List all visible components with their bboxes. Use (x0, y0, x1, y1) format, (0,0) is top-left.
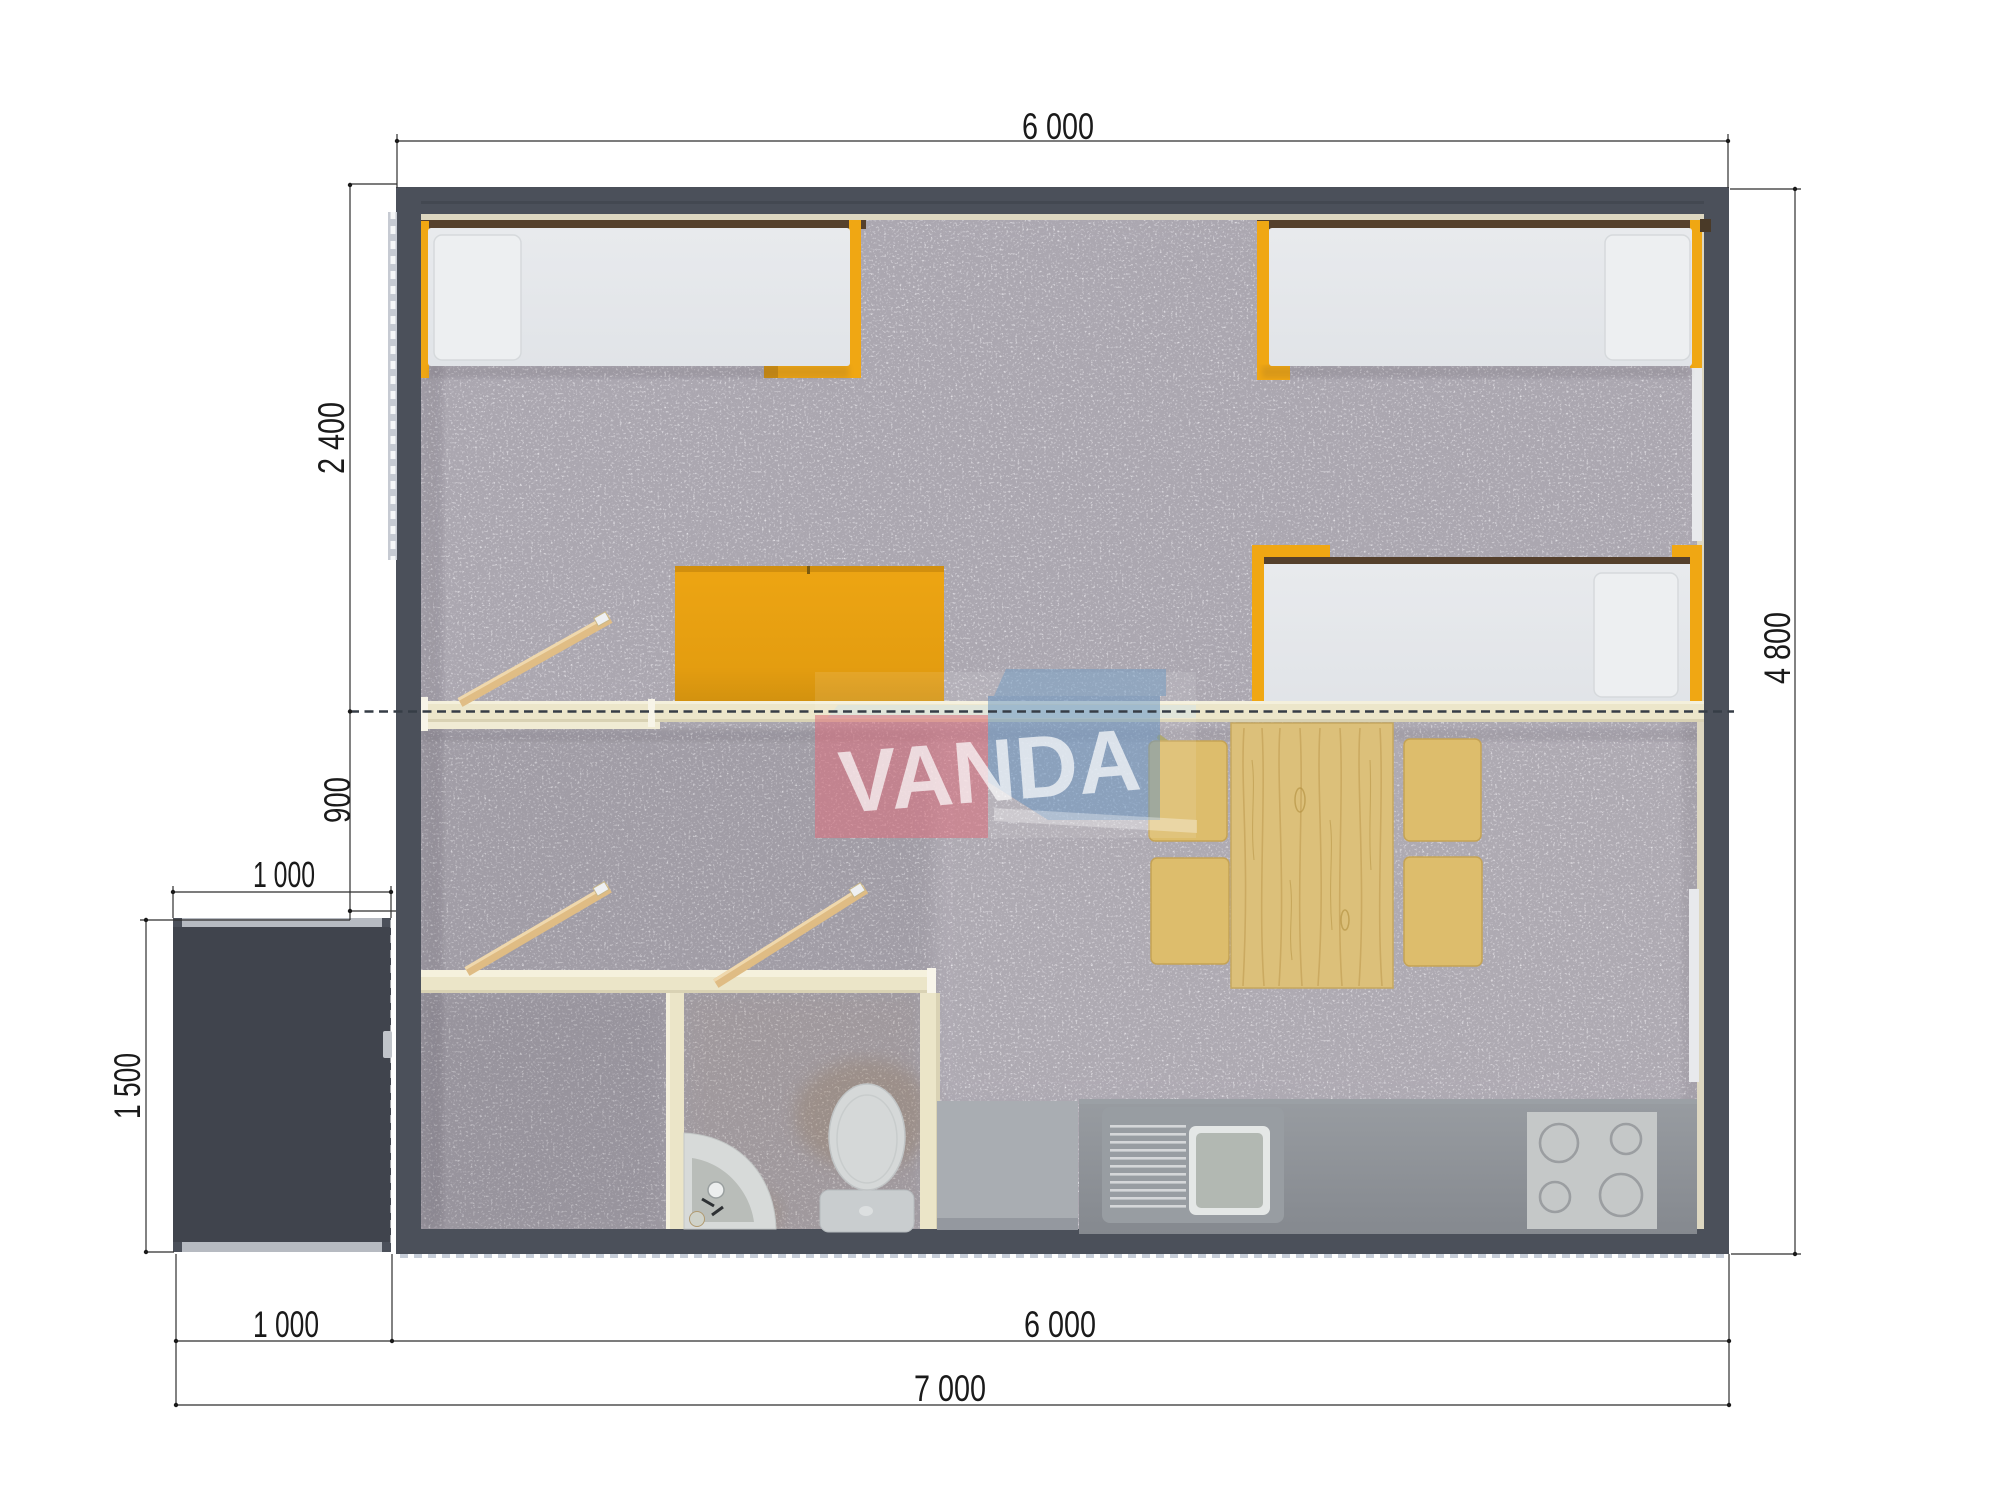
svg-text:4 800: 4 800 (1757, 612, 1798, 684)
svg-text:6 000: 6 000 (1022, 106, 1094, 147)
svg-text:2 400: 2 400 (311, 402, 352, 474)
svg-text:900: 900 (317, 777, 358, 823)
svg-text:1 000: 1 000 (253, 854, 315, 895)
svg-text:7 000: 7 000 (914, 1368, 986, 1409)
svg-text:1 000: 1 000 (253, 1304, 319, 1345)
svg-text:1 500: 1 500 (107, 1053, 148, 1119)
svg-text:6 000: 6 000 (1024, 1304, 1096, 1345)
